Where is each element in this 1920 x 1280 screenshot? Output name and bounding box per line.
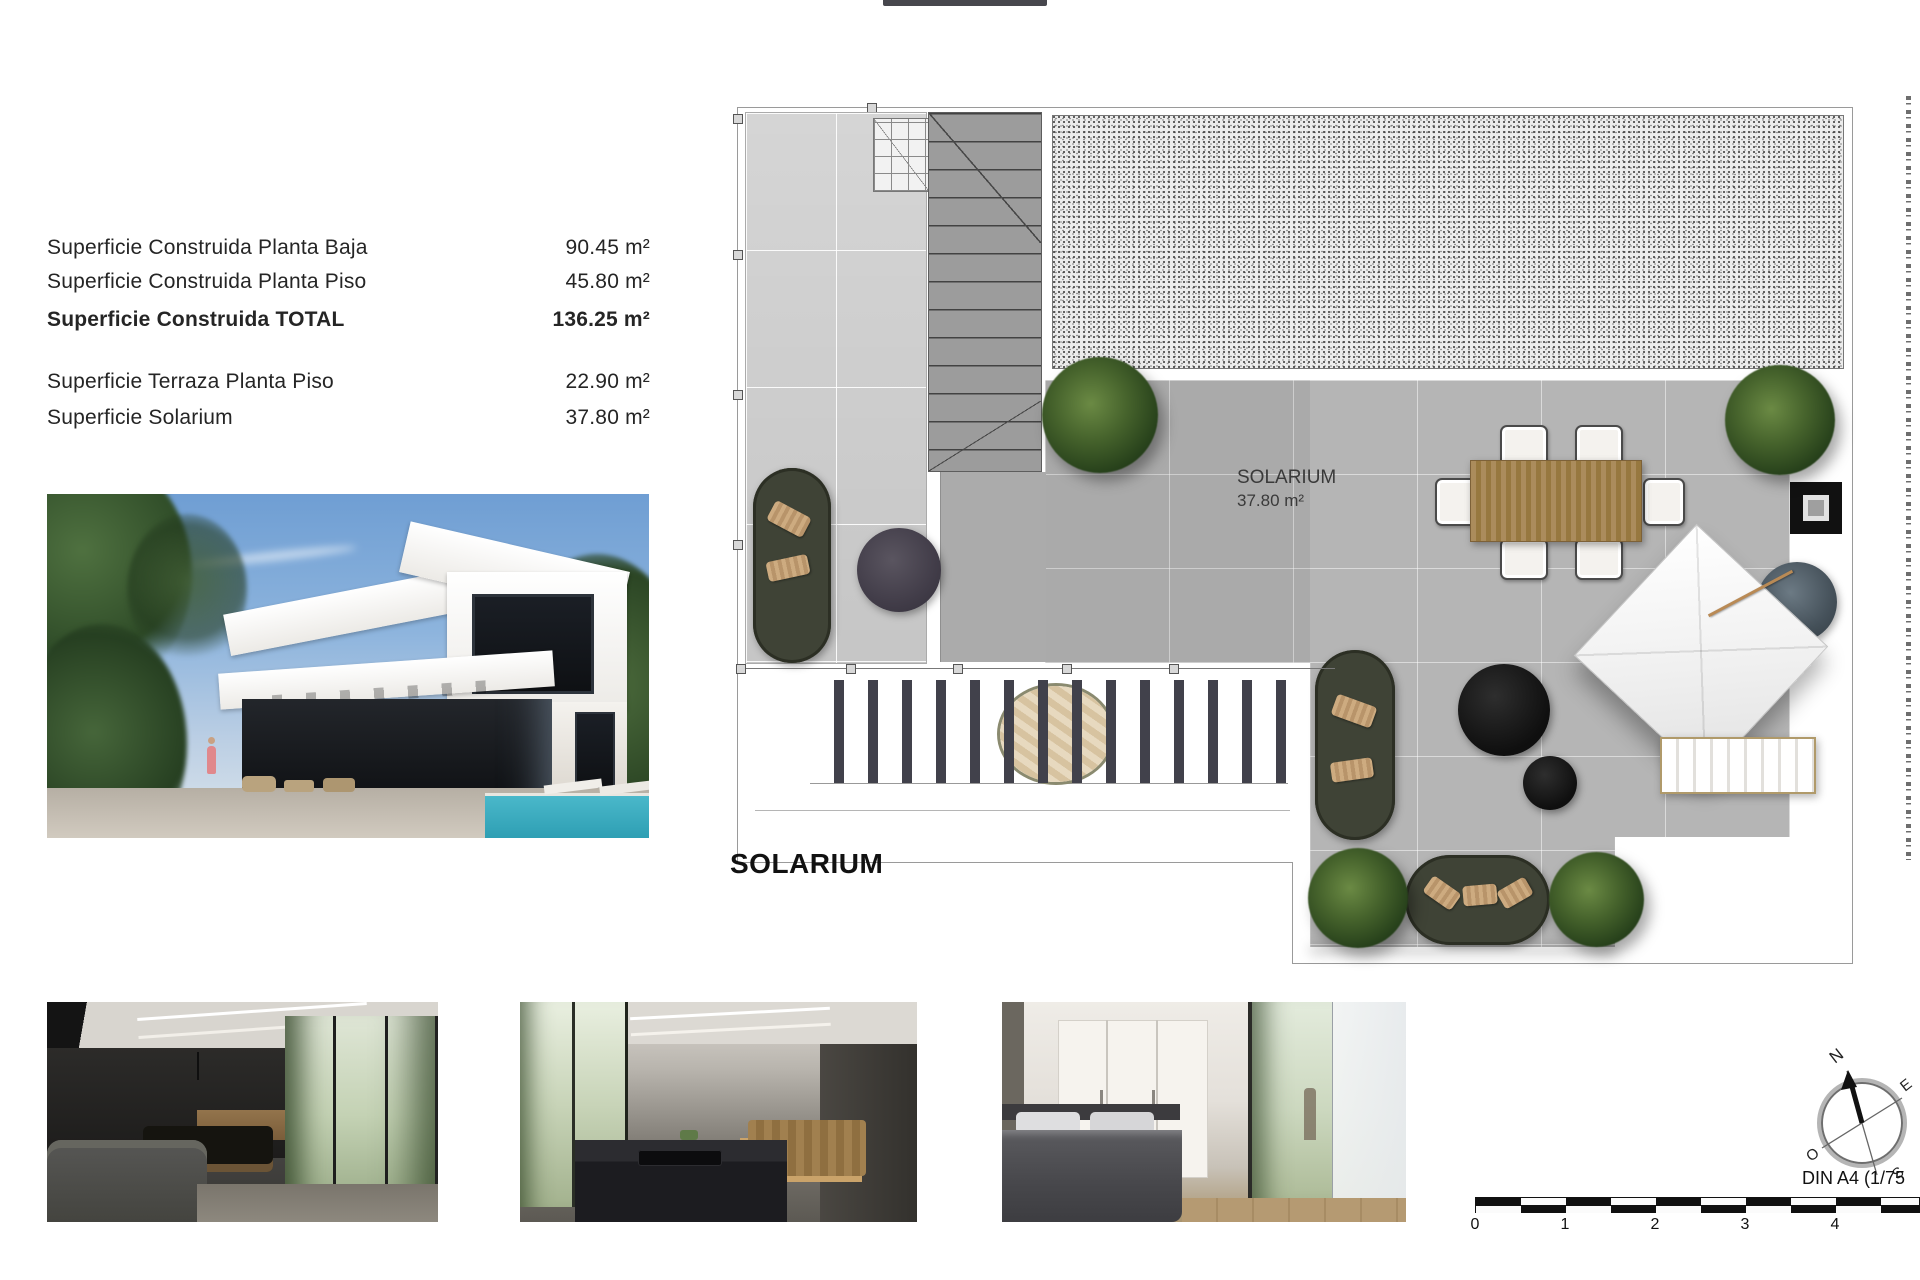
plan-sheet-page: Superficie Construida Planta Baja 90.45 … — [0, 0, 1920, 1280]
coffee-table-small — [1523, 756, 1577, 810]
dining-table — [1470, 460, 1642, 542]
scale-bar-row-top — [1476, 1198, 1919, 1206]
chaise-sofa — [753, 468, 831, 663]
scale-tick-label: 2 — [1651, 1216, 1660, 1234]
sheet-format-label: DIN A4 (1/75 — [1802, 1168, 1905, 1189]
skylight-core — [1808, 500, 1824, 516]
plant — [1549, 852, 1644, 947]
villa-exterior-photo — [47, 494, 649, 838]
kitchen-plant-accent — [680, 1130, 698, 1140]
plant — [1042, 357, 1158, 473]
surface-row-total: Superficie Construida TOTAL 136.25 m² — [47, 308, 650, 332]
surface-label: Superficie Terraza Planta Piso — [47, 370, 334, 394]
bed-duvet — [1002, 1130, 1182, 1222]
living-room-floor — [197, 1184, 438, 1222]
surface-label: Superficie Construida Planta Piso — [47, 270, 366, 294]
round-side-table — [857, 528, 941, 612]
window-mullion — [333, 1016, 336, 1196]
villa-terrace-furniture — [242, 776, 276, 792]
coffee-table-large — [1458, 664, 1550, 756]
living-room-sofa — [47, 1140, 207, 1222]
surface-label: Superficie Construida Planta Baja — [47, 236, 368, 260]
dimension-tick — [1169, 664, 1179, 674]
lounge-sofa-bottom — [1405, 855, 1550, 945]
villa-lower-dark-volume — [242, 699, 552, 795]
interior-photo-kitchen — [520, 1002, 917, 1222]
plant — [1725, 365, 1835, 475]
compass-svg: N E O S — [1805, 1038, 1920, 1188]
sun-lounger — [1660, 737, 1816, 794]
dimension-tick — [736, 664, 746, 674]
top-cropped-bar — [883, 0, 1047, 6]
living-room-window — [285, 1016, 438, 1196]
surface-row: Superficie Terraza Planta Piso 22.90 m² — [47, 370, 650, 394]
bedroom-person — [1304, 1088, 1316, 1140]
room-area: 37.80 m² — [1237, 490, 1336, 511]
dimension-tick — [953, 664, 963, 674]
surface-value: 45.80 m² — [566, 270, 650, 294]
plan-border-right — [1852, 107, 1853, 964]
surface-value: 22.90 m² — [566, 370, 650, 394]
compass-west-label: O — [1805, 1145, 1823, 1166]
skylight-frame — [1790, 482, 1842, 534]
pergola-beams — [810, 680, 1288, 783]
surface-row: Superficie Construida Planta Piso 45.80 … — [47, 270, 650, 294]
dining-chair — [1575, 538, 1623, 580]
dimension-tick — [846, 664, 856, 674]
dimension-tick — [1062, 664, 1072, 674]
dimension-line — [740, 668, 1335, 669]
scale-tick-label: 3 — [1741, 1216, 1750, 1234]
villa-person — [207, 746, 216, 774]
scale-bar-row-bottom — [1476, 1206, 1919, 1213]
cooktop — [638, 1150, 722, 1166]
dimension-tick — [733, 540, 743, 550]
stair-landing-hatch — [873, 118, 930, 192]
sofa-cushion — [765, 554, 810, 582]
wardrobe-handles — [1100, 1090, 1103, 1104]
window-mullion — [385, 1016, 388, 1196]
room-label: SOLARIUM — [1237, 466, 1336, 490]
compass-east-label: E — [1897, 1076, 1915, 1096]
plan-border-step — [1292, 862, 1293, 963]
scale-tick-label: 0 — [1471, 1216, 1480, 1234]
skylight-inner — [1803, 495, 1829, 521]
interior-photo-living-room — [47, 1002, 438, 1222]
pergola-strip — [810, 680, 1288, 784]
interior-photo-bedroom — [1002, 1002, 1406, 1222]
plant — [1308, 848, 1408, 948]
villa-person-head — [208, 737, 215, 744]
plan-border-left — [737, 107, 738, 862]
dining-chair — [1500, 538, 1548, 580]
scale-tick-label: 1 — [1561, 1216, 1570, 1234]
bedroom-curtain — [1332, 1002, 1406, 1198]
pergola-edge-line — [755, 810, 1290, 811]
scale-tick-label: 4 — [1831, 1216, 1840, 1234]
deck-under-stairs — [940, 472, 1046, 662]
dimension-tick — [733, 114, 743, 124]
scale-bar — [1475, 1197, 1920, 1213]
sofa-cushion — [1422, 875, 1461, 911]
sofa-cushion — [1331, 693, 1378, 728]
sofa-cushion — [1462, 884, 1498, 907]
bedroom-floor — [1182, 1198, 1406, 1222]
surface-label: Superficie Solarium — [47, 406, 233, 430]
gravel-roof-area — [1052, 115, 1844, 369]
surface-row: Superficie Solarium 37.80 m² — [47, 406, 650, 430]
solarium-floor-plan: SOLARIUM 37.80 m² — [735, 100, 1855, 968]
surface-label: Superficie Construida TOTAL — [47, 308, 344, 332]
villa-pool — [485, 793, 649, 838]
plan-border-bottom — [1292, 963, 1853, 964]
surface-row: Superficie Construida Planta Baja 90.45 … — [47, 236, 650, 260]
margin-vertical-text — [1906, 96, 1911, 860]
compass-north-label: N — [1826, 1045, 1847, 1068]
dimension-tick — [733, 250, 743, 260]
pendant-light — [197, 1052, 199, 1080]
surface-value: 37.80 m² — [566, 406, 650, 430]
plan-border-top — [737, 107, 1853, 108]
surface-value: 90.45 m² — [566, 236, 650, 260]
lounge-sofa-vertical — [1315, 650, 1395, 840]
staircase — [928, 112, 1042, 472]
surface-value: 136.25 m² — [552, 308, 650, 332]
dimension-tick — [733, 390, 743, 400]
dining-chair — [1643, 478, 1685, 526]
sofa-cushion — [1330, 757, 1374, 783]
sofa-cushion — [1496, 876, 1534, 909]
sofa-cushion — [766, 500, 812, 538]
plan-title: SOLARIUM — [730, 848, 883, 880]
room-label-block: SOLARIUM 37.80 m² — [1237, 466, 1336, 511]
compass-rose: N E O S — [1805, 1038, 1920, 1188]
